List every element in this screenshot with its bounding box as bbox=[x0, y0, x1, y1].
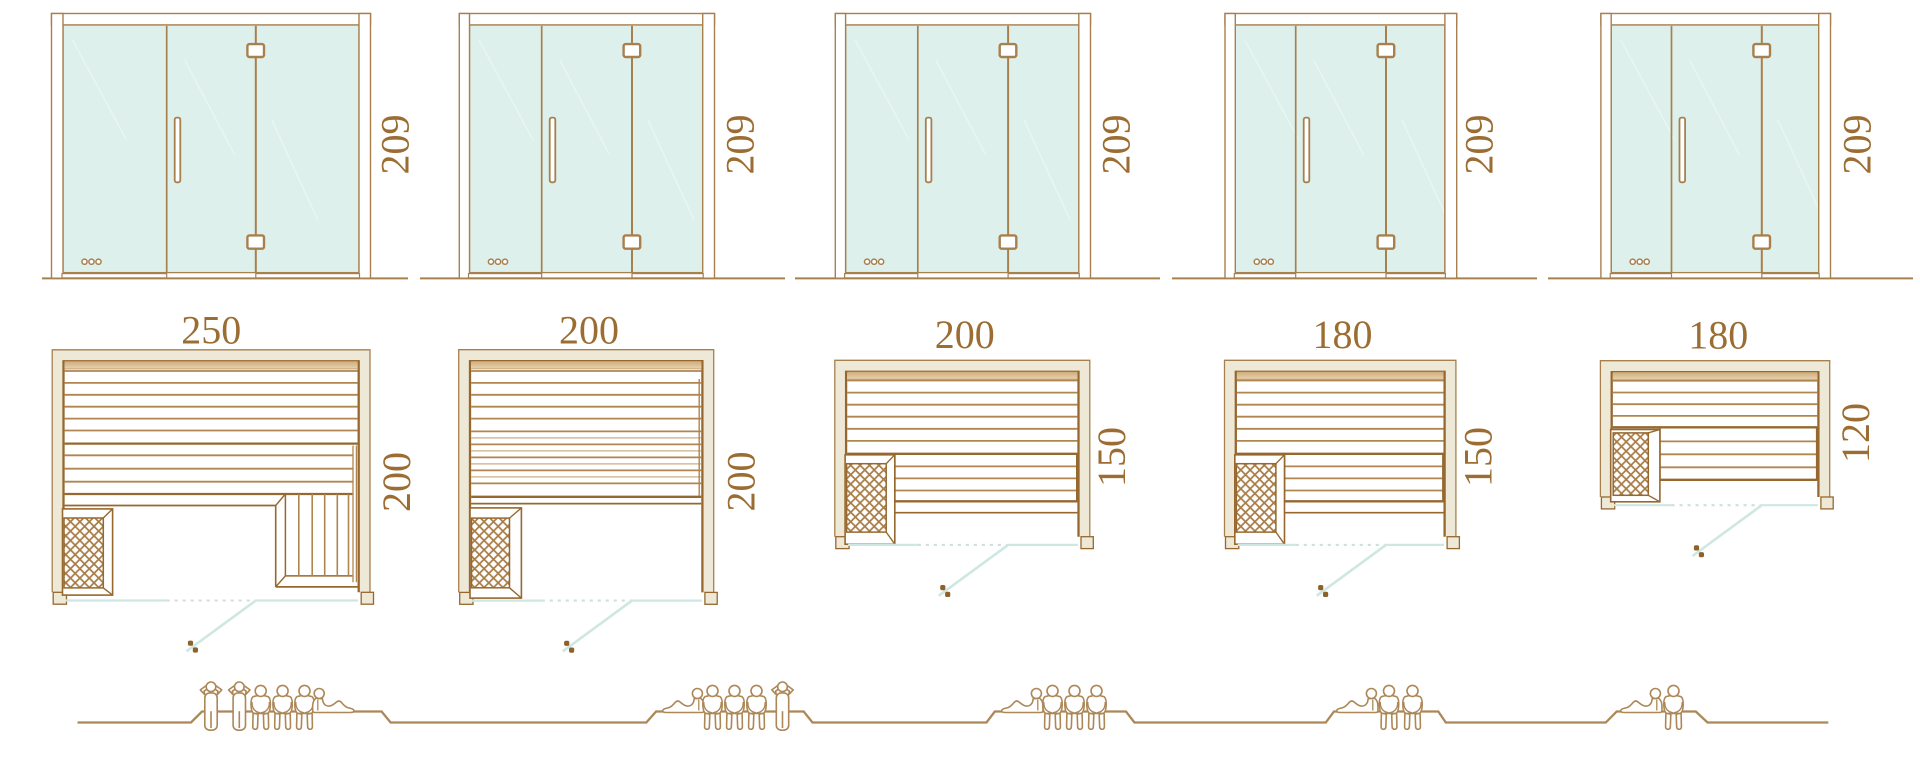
svg-text:150: 150 bbox=[1456, 427, 1501, 487]
svg-text:200: 200 bbox=[935, 312, 995, 357]
svg-text:200: 200 bbox=[559, 308, 619, 353]
svg-text:209: 209 bbox=[718, 115, 763, 175]
svg-text:250: 250 bbox=[181, 308, 241, 353]
svg-text:209: 209 bbox=[1094, 115, 1139, 175]
svg-text:209: 209 bbox=[1835, 115, 1880, 175]
svg-text:200: 200 bbox=[374, 452, 419, 512]
svg-text:150: 150 bbox=[1089, 427, 1134, 487]
svg-text:180: 180 bbox=[1313, 312, 1373, 357]
svg-text:209: 209 bbox=[1457, 115, 1502, 175]
svg-text:200: 200 bbox=[718, 452, 763, 512]
svg-text:209: 209 bbox=[373, 115, 418, 175]
svg-text:180: 180 bbox=[1688, 313, 1748, 358]
svg-text:120: 120 bbox=[1833, 403, 1878, 463]
